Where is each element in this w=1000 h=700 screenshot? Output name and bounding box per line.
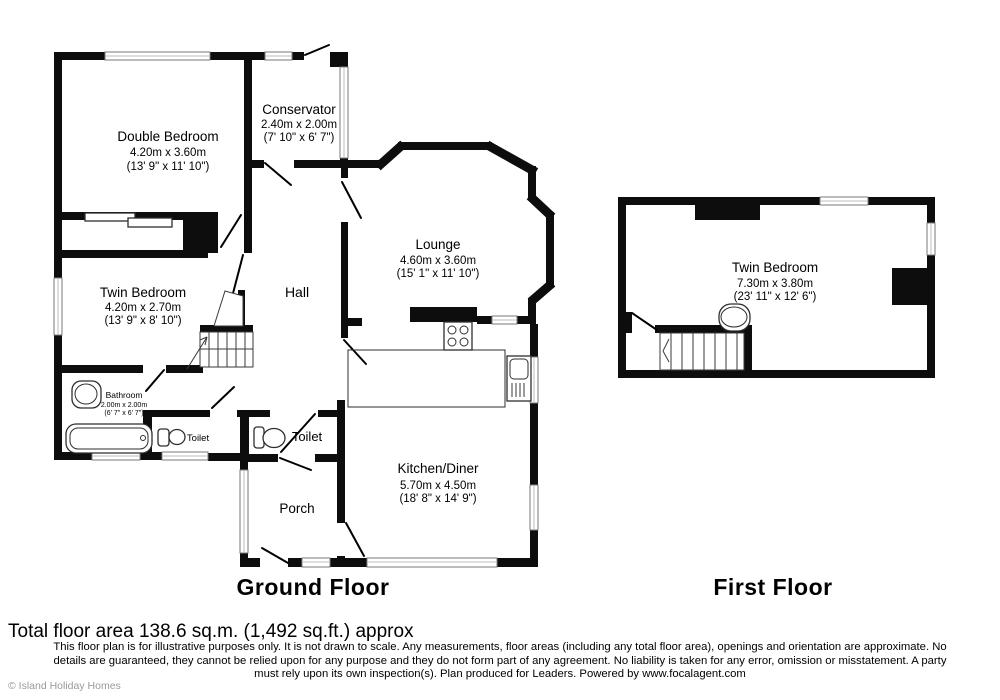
room-label-hall: Hall [285,284,309,300]
window [54,278,62,335]
copyright-notice: © Island Holiday Homes [8,680,121,692]
kitchen-counter [348,350,505,407]
door-leaf [262,548,288,563]
door-leaf [212,387,234,408]
window [492,316,517,324]
floorplan-page: Double Bedroom 4.20m x 3.60m (13' 9" x 1… [0,0,1000,700]
total-floor-area: Total floor area 138.6 sq.m. (1,492 sq.f… [8,621,414,643]
disclaimer-line: This floor plan is for illustrative purp… [0,641,1000,655]
room-label-lounge: Lounge [415,237,460,252]
first-floor-plan: Twin Bedroom 7.30m x 3.80m (23' 11" x 12… [618,197,935,378]
room-label-conservatory: Conservator [262,102,336,117]
first-floor-doors [632,313,657,330]
ground-floor-title: Ground Floor [153,574,473,601]
kitchen-sink [507,356,531,401]
first-floor-title: First Floor [613,574,933,601]
first-floor-windows [820,197,935,255]
room-dims-metric: 4.60m x 3.60m [400,255,476,267]
window [927,223,935,255]
window [265,52,292,60]
room-dims-imperial: (23' 11" x 12' 6") [734,291,817,303]
disclaimer-line: details are guaranteed, they cannot be r… [0,655,1000,669]
chimney-breast [183,212,218,253]
staircase-first [660,333,744,370]
door-leaf [280,458,311,470]
window [105,52,210,60]
disclaimer-line: must rely upon its own inspection(s). Pl… [0,668,1000,682]
first-floor-labels: Twin Bedroom 7.30m x 3.80m (23' 11" x 12… [732,260,818,303]
door-leaf [265,163,291,185]
room-dims-metric: 2.00m x 2.00m [101,402,147,409]
window [340,67,348,158]
first-floor-sink [719,304,750,331]
room-label-twin-bedroom-first: Twin Bedroom [732,260,818,275]
cupboard-door [214,291,243,326]
room-label-porch: Porch [279,501,314,516]
window [302,558,330,567]
window [367,558,497,567]
window [162,452,208,460]
door-leaf [146,370,164,391]
room-dims-metric: 2.40m x 2.00m [261,119,337,131]
bathroom-sink [72,381,101,408]
ground-floor-plan: Double Bedroom 4.20m x 3.60m (13' 9" x 1… [54,45,554,567]
stove [444,322,472,350]
room-dims-imperial: (15' 1" x 11' 10") [397,268,480,280]
window [530,485,538,530]
door-leaf [305,45,329,55]
room-label-bathroom: Bathroom [106,390,143,400]
room-label-toilet-small: Toilet [187,433,210,444]
room-dims-imperial: (7' 10" x 6' 7") [264,132,335,144]
room-dims-imperial: (6' 7" x 6' 7") [104,410,143,417]
wardrobe [128,218,172,227]
room-dims-imperial: (13' 9" x 8' 10") [104,315,181,327]
room-label-toilet: Toilet [292,429,323,444]
room-dims-metric: 5.70m x 4.50m [400,480,476,492]
disclaimer: This floor plan is for illustrative purp… [0,641,1000,682]
room-dims-imperial: (18' 8" x 14' 9") [399,493,476,505]
window [820,197,868,205]
toilet-fixture [254,427,285,448]
room-dims-imperial: (13' 9" x 11' 10") [127,161,210,173]
room-dims-metric: 4.20m x 3.60m [130,147,206,159]
chimney-breast [892,268,927,305]
room-dims-metric: 4.20m x 2.70m [105,302,181,314]
bathtub [66,424,152,453]
room-label-kitchen-diner: Kitchen/Diner [397,461,479,476]
door-leaf [632,313,657,330]
room-label-twin-bedroom: Twin Bedroom [100,285,186,300]
room-label-double-bedroom: Double Bedroom [117,129,218,144]
door-leaf [342,182,361,218]
room-dims-metric: 7.30m x 3.80m [737,278,813,290]
chimney-breast [695,205,760,220]
door-leaf [346,523,364,556]
door-leaf [344,340,366,364]
door-leaf [221,215,241,247]
window [240,470,248,553]
toilet-fixture-small [158,429,185,446]
